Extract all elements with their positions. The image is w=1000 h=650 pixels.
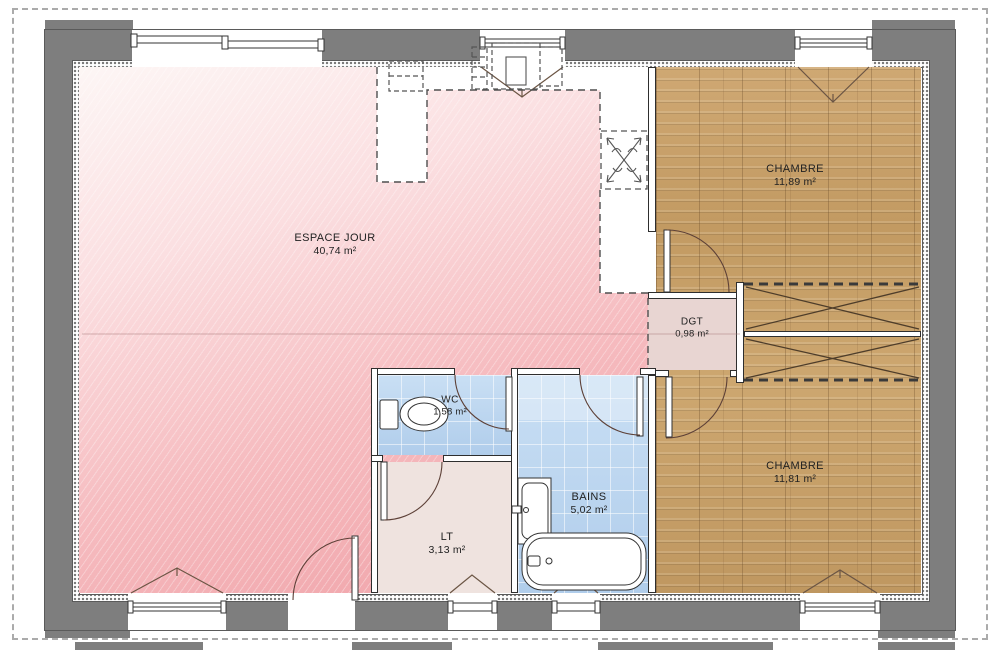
room-name: CHAMBRE xyxy=(766,459,824,473)
glazing-lt-bottom xyxy=(448,601,497,613)
room-area: 5,02 m² xyxy=(571,504,608,518)
glazing-chambre1-top xyxy=(795,37,872,49)
water-heater-dashed xyxy=(601,131,647,189)
room-name: LT xyxy=(429,530,466,544)
room-area: 0,98 m² xyxy=(675,328,709,340)
bains-door-leaf xyxy=(637,377,643,436)
glazing-living-top xyxy=(131,34,324,51)
glazing-bains-bottom xyxy=(552,601,600,613)
label-chambre-1: CHAMBRE 11,89 m² xyxy=(766,162,824,190)
chambre1-door-arc xyxy=(667,230,729,292)
label-bains: BAINS 5,02 m² xyxy=(571,490,608,518)
entry-door-leaf xyxy=(352,536,358,600)
bathtub-fixture xyxy=(522,533,646,590)
room-area: 40,74 m² xyxy=(294,245,375,259)
living-zone-dashed-boundary xyxy=(377,67,648,368)
kitchen-sink-unit xyxy=(506,57,526,85)
chambre2-door-leaf xyxy=(666,377,672,437)
entry-door-arc xyxy=(293,538,355,600)
room-name: WC xyxy=(433,393,467,406)
glazing-living-bottom xyxy=(128,601,226,613)
lt-door-leaf xyxy=(381,462,387,520)
room-name: ESPACE JOUR xyxy=(294,231,375,245)
room-name: CHAMBRE xyxy=(766,162,824,176)
room-name: BAINS xyxy=(571,490,608,504)
chambre1-door-leaf xyxy=(664,230,670,292)
window-swing-symbols xyxy=(131,67,877,593)
label-dgt: DGT 0,98 m² xyxy=(675,315,709,340)
label-chambre-2: CHAMBRE 11,81 m² xyxy=(766,459,824,487)
room-area: 11,81 m² xyxy=(766,473,824,487)
label-espace-jour: ESPACE JOUR 40,74 m² xyxy=(294,231,375,259)
room-area: 11,89 m² xyxy=(766,176,824,190)
label-lt: LT 3,13 m² xyxy=(429,530,466,558)
room-name: DGT xyxy=(675,315,709,328)
doors xyxy=(293,230,729,600)
floor-plan: ESPACE JOUR 40,74 m² CHAMBRE 11,89 m² DG… xyxy=(0,0,1000,650)
lt-door-arc xyxy=(384,462,442,520)
label-wc: WC 1,58 m² xyxy=(433,393,467,418)
glazing-chambre2-bottom xyxy=(800,601,880,613)
room-area: 3,13 m² xyxy=(429,544,466,558)
room-area: 1,58 m² xyxy=(433,406,467,418)
chambre2-door-arc xyxy=(666,377,727,438)
kitchen-units-dashed xyxy=(389,43,562,91)
closets xyxy=(744,284,921,380)
plan-linework xyxy=(0,0,1000,650)
bains-door-arc xyxy=(580,375,640,435)
wc-door-leaf xyxy=(506,377,512,431)
